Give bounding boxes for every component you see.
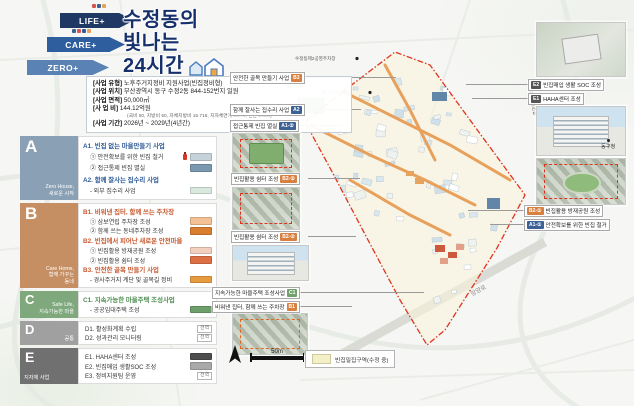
callout-e2: E2 빈집매입 생활 SOC 조성	[528, 79, 604, 91]
soc-site	[432, 92, 447, 101]
project-item: D1. 활성화계획 수립 전역	[83, 324, 212, 333]
project-item-label: E1. HAHA센터 조성	[85, 352, 190, 361]
project-item: E1. HAHA센터 조성	[83, 352, 212, 361]
project-item-label: ② 접근통제 빈집 멸실	[90, 163, 190, 172]
callout-line	[308, 178, 360, 179]
scope-tag: 전역	[197, 372, 212, 380]
callout-text: 지속가능한 마을주택 조성사업	[215, 289, 285, 297]
project-item: ② 빈집활용 쉼터 조성	[83, 256, 212, 265]
info-row-area: [사업 면적] 50,000㎡	[93, 97, 345, 105]
building-render	[247, 252, 296, 275]
callout-text: 빈집활용 방재공원 조성	[546, 207, 601, 215]
callout-line	[466, 84, 528, 85]
callout-b2-1: B2-① 빈집활용 방재공원 조성	[524, 205, 603, 217]
project-item-label: - 외부 집수리 사업	[90, 186, 190, 195]
poi-dot	[368, 91, 371, 94]
page-title: 수정동의 빛나는 24시간	[123, 9, 224, 78]
group-title-b3: B3. 안전한 골목 만들기 사업	[83, 265, 212, 274]
map-color-swatch	[190, 256, 212, 264]
poster-root: { "header": { "arrows": [ {"label": "LIF…	[0, 0, 634, 406]
map-color-swatch	[190, 353, 212, 361]
project-item-label: ① 삼보연립 주차장 조성	[90, 217, 190, 226]
callout-text: 안전확보를 위한 빈집 철거	[546, 221, 607, 229]
info-label: [사업 위치]	[93, 88, 122, 95]
callout-c1: 지속가능한 마을주택 조성사업 C1	[212, 287, 300, 299]
callout-text: HAHA센터 조성	[543, 95, 581, 103]
callout-line	[468, 210, 524, 211]
arrow-zero-label: ZERO+	[47, 63, 78, 73]
group-title-a1: A1. 빈집 없는 마을만들기 사업	[83, 141, 212, 150]
callout-b2-2-lower: 빈집활용 쉼터 조성 B2-②	[231, 231, 300, 243]
info-value: 50,000㎡	[124, 97, 150, 104]
thumb-boundary	[544, 164, 618, 199]
legend-swatch	[312, 354, 331, 364]
callout-text: 함께 잘사는 집수리 사업	[233, 106, 289, 114]
thumbnail-aerial-park	[536, 158, 626, 205]
parking-site	[415, 178, 424, 184]
building-render	[562, 34, 602, 65]
callout-line	[308, 236, 356, 237]
callout-text: 접근통제 빈집 멸실	[233, 122, 277, 130]
project-item-label: ② 빈집활용 쉼터 조성	[90, 256, 190, 265]
callout-badge: B1	[287, 303, 297, 311]
scale-bar: 50m	[250, 349, 304, 360]
callout-b1: 비워낸 집터, 함께 쓰는 주차장 B1	[212, 301, 300, 313]
district-office-label: 동구청	[601, 143, 615, 150]
arrow-care-label: CARE+	[65, 40, 97, 50]
fire-extinguisher-icon	[183, 154, 187, 160]
poi-dot	[607, 139, 610, 142]
project-item-label: E2. 빈집매입 생활SOC 조성	[85, 362, 190, 371]
map-color-swatch	[190, 247, 212, 255]
title-line-3: 24시간	[123, 55, 184, 78]
project-item: D2. 성과관리 모니터링 전역	[83, 333, 212, 342]
poi-dot	[355, 57, 358, 60]
scale-label: 50m	[250, 349, 304, 355]
section-b-letter: B	[20, 203, 78, 225]
project-item: ① 삼보연립 주차장 조성	[83, 217, 212, 226]
info-label: [사 업 비]	[93, 105, 118, 112]
section-b-label: B Care Home, 함께 가꾸는 동네	[20, 203, 78, 288]
group-title-c1: C1. 지속가능한 마을주택 조성사업	[83, 295, 212, 304]
section-e-label: E 지자체 사업	[20, 348, 78, 384]
label-public-parking: 수정동제2공영주차장	[295, 55, 336, 62]
section-b-subtitle: Care Home, 함께 가꾸는 동네	[46, 266, 74, 285]
thumbnail-aerial-field	[232, 133, 300, 174]
thumbnail-aerial-shelter	[232, 187, 300, 230]
callout-badge: A2	[291, 106, 301, 114]
project-item-label: D1. 활성화계획 수립	[85, 324, 197, 333]
group-title-b1: B1. 비워낸 집터, 함께 쓰는 주차장	[83, 207, 212, 216]
info-value: 부산광역시 동구 수정2동 844-152번지 일원	[124, 88, 239, 95]
callout-b3: 안전한 골목 만들기 사업 B3	[230, 72, 305, 84]
section-a: A Zero House, 새로운 시작 A1. 빈집 없는 마을만들기 사업 …	[20, 136, 217, 200]
project-item: ① 빈집활용 방재공원 조성	[83, 246, 212, 255]
project-item: E3. 정비지원팀 운영 전역	[83, 371, 212, 380]
callout-line	[490, 224, 524, 225]
section-e-body: E1. HAHA센터 조성 E2. 빈집매입 생활SOC 조성 E3. 정비지원…	[78, 348, 217, 384]
info-label: [사업 유형]	[93, 80, 122, 87]
section-c: C Safe Life, 지속가능한 마을 C1. 지속가능한 마을주택 조성사…	[20, 291, 217, 318]
house-icon	[188, 57, 224, 77]
project-item: - 경사주거지 계단 및 골목길 정비	[83, 275, 212, 284]
project-item-label: ② 함께 쓰는 동네주차장 조성	[90, 226, 190, 235]
info-label: [사업 기간]	[93, 120, 122, 127]
shelter-site	[435, 245, 445, 252]
section-d-subtitle: 공통	[64, 336, 74, 342]
callout-text: 비워낸 집터, 함께 쓰는 주차장	[215, 303, 285, 311]
thumbnail-render-soc	[536, 22, 626, 77]
project-item-label: - 공공임대주택 조성	[90, 305, 190, 314]
section-a-body: A1. 빈집 없는 마을만들기 사업 ① 안전확보를 위한 빈집 철거 ② 접근…	[78, 136, 217, 200]
section-e-letter: E	[20, 348, 78, 366]
callout-badge: B3	[291, 74, 301, 82]
district-office-marker: 동구청	[601, 139, 615, 150]
project-item: ② 접근통제 빈집 멸실	[83, 163, 212, 172]
thumb-boundary	[240, 193, 292, 224]
callout-badge: B2-②	[280, 233, 297, 241]
project-item-label: ① 안전확보를 위한 빈집 철거	[90, 152, 183, 161]
project-item: E2. 빈집매입 생활SOC 조성	[83, 362, 212, 371]
callout-text: 빈집활용 쉼터 조성	[234, 175, 278, 183]
callout-badge: B2-①	[527, 207, 544, 215]
section-e: E 지자체 사업 E1. HAHA센터 조성 E2. 빈집매입 생활SOC 조성…	[20, 348, 217, 384]
map-color-swatch	[190, 153, 212, 161]
info-value: 노후주거지정비 지원사업(빈집정비형)	[124, 80, 223, 87]
callout-badge: A1-②	[279, 122, 296, 130]
map-color-swatch	[190, 227, 212, 235]
callout-badge: E1	[531, 95, 541, 103]
shelter-site	[448, 252, 457, 258]
map-color-swatch	[190, 306, 212, 314]
project-item: - 공공임대주택 조성	[83, 305, 212, 314]
project-item-label: E3. 정비지원팀 운영	[85, 371, 197, 380]
thumbnail-render-housing	[232, 245, 309, 281]
title-line-1: 수정동의	[123, 9, 224, 32]
people-pictogram-icons	[92, 4, 106, 8]
section-c-subtitle: Safe Life, 지속가능한 마을	[39, 302, 74, 315]
project-item: - 외부 집수리 사업	[83, 186, 212, 195]
group-title-a2: A2. 함께 잘사는 집수리 사업	[83, 175, 212, 184]
parking-site	[406, 171, 414, 176]
callout-badge: B2-②	[280, 175, 297, 183]
section-d-body: D1. 활성화계획 수립 전역 D2. 성과관리 모니터링 전역	[78, 321, 217, 345]
parking-site	[456, 244, 464, 250]
callout-b2-2-upper: 빈집활용 쉼터 조성 B2-②	[231, 173, 300, 185]
section-b: B Care Home, 함께 가꾸는 동네 B1. 비워낸 집터, 함께 쓰는…	[20, 203, 217, 288]
callout-text: 빈집매입 생활 SOC 조성	[543, 81, 601, 89]
info-row-location: [사업 위치] 부산광역시 동구 수정2동 844-152번지 일원	[93, 88, 345, 96]
callout-a1-1: A1-① 안전확보를 위한 빈집 철거	[524, 219, 610, 231]
section-c-label: C Safe Life, 지속가능한 마을	[20, 291, 78, 318]
project-item: ① 안전확보를 위한 빈집 철거	[83, 152, 212, 161]
project-sections: A Zero House, 새로운 시작 A1. 빈집 없는 마을만들기 사업 …	[20, 136, 217, 384]
section-b-body: B1. 비워낸 집터, 함께 쓰는 주차장 ① 삼보연립 주차장 조성 ② 함께…	[78, 203, 217, 288]
title-line-2: 빛나는	[123, 32, 224, 55]
project-info-box: [사업 유형] 노후주거지정비 지원사업(빈집정비형) [사업 위치] 부산광역…	[86, 76, 352, 133]
scale-bar-line	[250, 356, 304, 360]
callout-badge: C1	[287, 289, 297, 297]
callout-badge: A1-①	[527, 221, 544, 229]
callout-e1: E1 HAHA센터 조성	[528, 93, 584, 105]
family-pictogram-icons	[72, 29, 91, 33]
info-row-period: [사업 기간] 2026년 ~ 2029년(4년간)	[93, 120, 345, 128]
section-a-letter: A	[20, 136, 78, 158]
map-color-swatch	[190, 217, 212, 225]
section-d-label: D 공통	[20, 321, 78, 345]
section-a-label: A Zero House, 새로운 시작	[20, 136, 78, 200]
info-value: 144.12억원	[120, 105, 151, 112]
info-row-budget: [사 업 비] 144.12억원	[93, 105, 345, 113]
section-c-body: C1. 지속가능한 마을주택 조성사업 - 공공임대주택 조성	[78, 291, 217, 318]
callout-line	[472, 98, 528, 99]
section-e-subtitle: 지자체 사업	[24, 375, 49, 381]
haha-center-site	[487, 198, 500, 209]
scope-tag: 전역	[197, 325, 212, 333]
project-item-label: - 경사주거지 계단 및 골목길 정비	[90, 275, 190, 284]
project-item: ② 함께 쓰는 동네주차장 조성	[83, 226, 212, 235]
map-color-swatch	[190, 187, 212, 195]
project-item-label: ① 빈집활용 방재공원 조성	[90, 246, 190, 255]
north-arrow-icon	[228, 345, 242, 364]
section-a-subtitle: Zero House, 새로운 시작	[45, 184, 74, 197]
callout-text: 안전한 골목 만들기 사업	[233, 74, 289, 82]
arrow-care: CARE+	[47, 37, 125, 52]
info-value: 2026년 ~ 2029년(4년간)	[124, 120, 190, 127]
callout-a2: 함께 잘사는 집수리 사업 A2	[230, 104, 305, 116]
callout-badge: E2	[531, 81, 541, 89]
project-item-label: D2. 성과관리 모니터링	[85, 333, 197, 342]
callout-a1-2: 접근통제 빈집 멸실 A1-②	[230, 120, 299, 132]
section-d: D 공통 D1. 활성화계획 수립 전역 D2. 성과관리 모니터링 전역	[20, 321, 217, 345]
arrow-life-label: LIFE+	[79, 16, 105, 26]
thumb-boundary	[240, 139, 292, 168]
callout-text: 빈집활용 쉼터 조성	[234, 233, 278, 241]
map-color-swatch	[190, 276, 212, 284]
map-legend: 빈집밀집구역(수정 중)	[305, 350, 395, 368]
map-color-swatch	[190, 362, 212, 370]
thumb-boundary	[240, 319, 300, 349]
info-label: [사업 면적]	[93, 97, 122, 104]
callout-line	[292, 292, 424, 293]
legend-label: 빈집밀집구역(수정 중)	[335, 355, 388, 364]
group-title-b2: B2. 빈집에서 피어난 새로운 안전마을	[83, 236, 212, 245]
arrow-zero: ZERO+	[27, 60, 109, 75]
disaster-park-site	[440, 258, 448, 264]
map-color-swatch	[190, 164, 212, 172]
scope-tag: 전역	[197, 334, 212, 342]
